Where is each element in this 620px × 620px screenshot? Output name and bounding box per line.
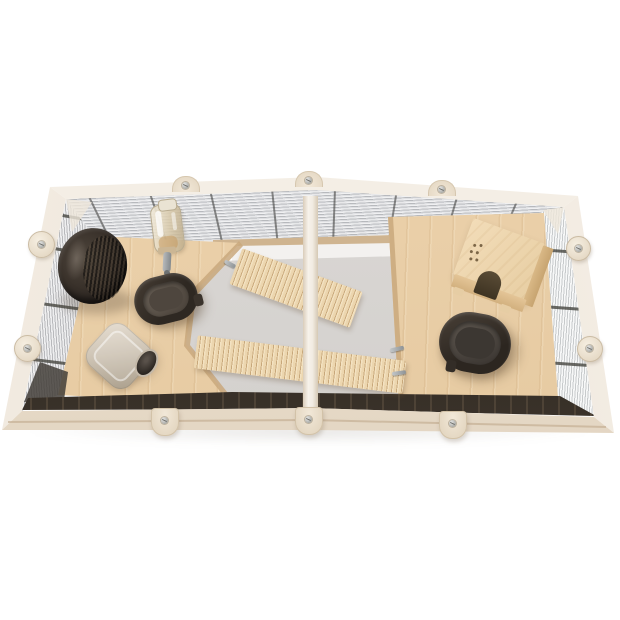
screw — [182, 182, 189, 189]
screw — [38, 241, 45, 248]
screw — [305, 416, 312, 423]
screw-tab — [172, 176, 200, 192]
mesh-wire — [271, 188, 279, 246]
screw-tab — [151, 408, 179, 436]
vent-hole — [469, 250, 473, 254]
bottle-highlight — [155, 211, 164, 238]
mesh-wire — [209, 189, 224, 246]
screw-disc — [28, 231, 55, 258]
screw-disc — [566, 236, 591, 261]
screw — [586, 345, 593, 352]
screw — [24, 345, 31, 352]
bottle-cap — [157, 198, 177, 212]
center-divider — [303, 196, 318, 412]
screw-tab — [428, 180, 456, 196]
screw — [305, 177, 312, 184]
screw — [449, 420, 456, 427]
vent-hole — [475, 258, 479, 262]
screw-tab — [295, 407, 323, 435]
vent-hole — [473, 243, 477, 247]
vent-hole — [475, 251, 479, 255]
vent-hole — [469, 257, 473, 261]
bottle-highlight — [171, 212, 177, 230]
screw-disc — [577, 336, 603, 362]
screw-tab — [439, 411, 467, 439]
screw-disc — [14, 335, 41, 362]
vent-hole — [479, 244, 483, 248]
screw — [161, 417, 168, 424]
screw-tab — [295, 171, 323, 187]
product-photo — [0, 0, 620, 620]
screw — [575, 245, 582, 252]
screw — [438, 186, 445, 193]
